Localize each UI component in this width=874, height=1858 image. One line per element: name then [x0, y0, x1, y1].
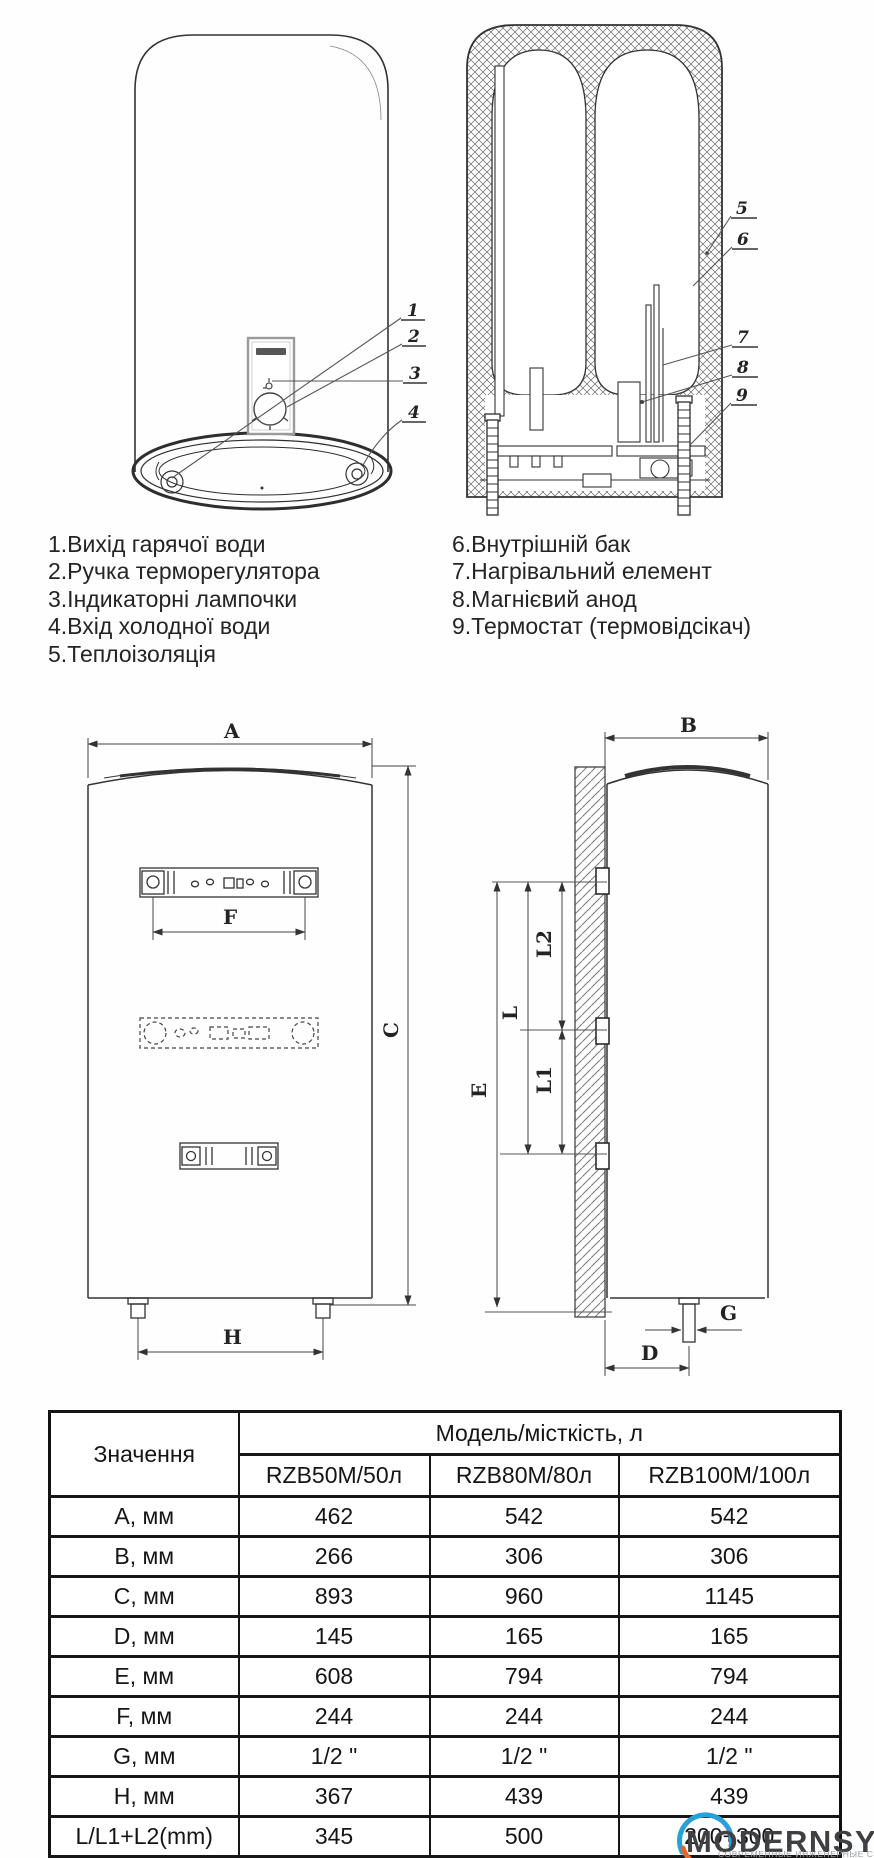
table-cell: 439: [430, 1777, 619, 1817]
legend-item: 7.Нагрівальний елемент: [452, 558, 751, 585]
table-cell: 165: [430, 1617, 619, 1657]
table-cell: 500: [430, 1817, 619, 1857]
callout-7: 7: [737, 328, 749, 348]
lower-mounting-bracket: [180, 1143, 278, 1169]
table-cell: 306: [619, 1537, 841, 1577]
table-cell: 1145: [619, 1577, 841, 1617]
inner-tank-left: [492, 50, 586, 395]
table-header-values: Значення: [50, 1412, 239, 1497]
manual-page: 1 2 3 4: [0, 0, 874, 1858]
table-cell: 893: [239, 1577, 430, 1617]
table-cell: 244: [239, 1697, 430, 1737]
table-row: F, мм 244 244 244: [50, 1697, 841, 1737]
drawing-dimensions-side: B E L L2 L1 G D: [420, 700, 874, 1390]
legend-item: 1.Вихід гарячої води: [48, 531, 320, 558]
dim-label-L2: L2: [532, 930, 556, 958]
col-header-model-3: RZB100M/100л: [619, 1455, 841, 1497]
callout-1: 1: [407, 301, 419, 321]
callout-3: 3: [409, 364, 421, 384]
row-label: C, мм: [50, 1577, 239, 1617]
dim-label-G: G: [720, 1301, 737, 1325]
callout-2: 2: [407, 327, 420, 347]
table-cell: 794: [619, 1657, 841, 1697]
brand-plate: [256, 348, 286, 355]
left-flange: [497, 446, 612, 456]
table-cell: 244: [430, 1697, 619, 1737]
table-cell: 367: [239, 1777, 430, 1817]
table-row: D, мм 145 165 165: [50, 1617, 841, 1657]
table-cell: 165: [619, 1617, 841, 1657]
dim-label-C: C: [379, 1022, 403, 1038]
drawing-cross-section: 5 6 7 8 9: [435, 8, 770, 520]
col-header-model-2: RZB80M/80л: [430, 1455, 619, 1497]
legend-item: 3.Індикаторні лампочки: [48, 586, 320, 613]
dim-label-E: E: [467, 1083, 491, 1098]
row-label: D, мм: [50, 1617, 239, 1657]
heating-element-tube2: [654, 285, 659, 442]
table-cell: 960: [430, 1577, 619, 1617]
callout-5: 5: [736, 199, 748, 219]
table-cell: 266: [239, 1537, 430, 1577]
row-label: G, мм: [50, 1737, 239, 1777]
legend-item: 4.Вхід холодної води: [48, 613, 320, 640]
row-label: A, мм: [50, 1497, 239, 1537]
dim-label-D: D: [641, 1341, 658, 1365]
heater-outline: [88, 768, 372, 1298]
legend-item: 5.Теплоізоляція: [48, 641, 320, 668]
spec-table: Значення Модель/місткість, л RZB50M/50л …: [48, 1410, 842, 1858]
dim-label-H: H: [223, 1325, 242, 1349]
row-label: H, мм: [50, 1777, 239, 1817]
legend-left-column: 1.Вихід гарячої води 2.Ручка терморегуля…: [48, 531, 320, 668]
anode-pocket: [618, 382, 640, 442]
legend-item: 6.Внутрішній бак: [452, 531, 751, 558]
dim-label-L: L: [498, 1006, 522, 1020]
bottom-pipe: [679, 1298, 699, 1342]
table-cell: 608: [239, 1657, 430, 1697]
right-flange: [617, 446, 705, 456]
callout-4: 4: [408, 403, 420, 423]
table-row: A, мм 462 542 542: [50, 1497, 841, 1537]
heater-side-outline: [607, 767, 768, 1298]
legend-item: 2.Ручка терморегулятора: [48, 558, 320, 585]
callout-6: 6: [737, 230, 749, 250]
table-cell: 306: [430, 1537, 619, 1577]
table-cell: 1/2 ": [430, 1737, 619, 1777]
table-cell: 462: [239, 1497, 430, 1537]
dim-label-L1: L1: [532, 1066, 556, 1094]
table-cell: 244: [619, 1697, 841, 1737]
row-label: E, мм: [50, 1657, 239, 1697]
upper-mounting-bracket: [140, 868, 318, 897]
outlet-tube: [495, 66, 504, 416]
table-cell: 1/2 ": [239, 1737, 430, 1777]
row-label: B, мм: [50, 1537, 239, 1577]
table-row: C, мм 893 960 1145: [50, 1577, 841, 1617]
table-cell: 1/2 ": [619, 1737, 841, 1777]
legend-item: 9.Термостат (термовідсікач): [452, 613, 751, 640]
dim-A-lines: [88, 738, 372, 778]
bottom-pipes: [128, 1298, 333, 1318]
table-row: B, мм 266 306 306: [50, 1537, 841, 1577]
table-header-model-capacity: Модель/місткість, л: [239, 1412, 841, 1455]
table-cell: 542: [619, 1497, 841, 1537]
heating-element-tube: [646, 305, 651, 442]
legend-item: 8.Магнієвий анод: [452, 586, 751, 613]
table-row: E, мм 608 794 794: [50, 1657, 841, 1697]
dim-label-F: F: [223, 905, 237, 929]
watermark-tagline: СОВРЕМЕННЫЕ ИНЖЕНЕРНЫЕ СИСТЕМЫ: [718, 1849, 874, 1858]
hidden-bracket-dashed: [140, 1018, 318, 1048]
cold-water-inlet-pipe: [346, 456, 374, 485]
dim-label-A: A: [223, 719, 240, 743]
legend-right-column: 6.Внутрішній бак 7.Нагрівальний елемент …: [452, 531, 751, 641]
drawing-dimensions-front: A C F H: [60, 700, 430, 1380]
col-header-model-1: RZB50M/50л: [239, 1455, 430, 1497]
row-label: F, мм: [50, 1697, 239, 1737]
table-cell: 794: [430, 1657, 619, 1697]
table-cell: 145: [239, 1617, 430, 1657]
table-row: G, мм 1/2 " 1/2 " 1/2 ": [50, 1737, 841, 1777]
dim-label-B: B: [680, 713, 697, 737]
element-pocket: [530, 368, 543, 430]
callout-9: 9: [736, 386, 748, 406]
table-cell: 542: [430, 1497, 619, 1537]
table-cell: 345: [239, 1817, 430, 1857]
drawing-external-view: 1 2 3 4: [75, 10, 435, 515]
dim-C-lines: [330, 766, 416, 1305]
row-label: L/L1+L2(mm): [50, 1817, 239, 1857]
callout-8: 8: [736, 358, 749, 378]
